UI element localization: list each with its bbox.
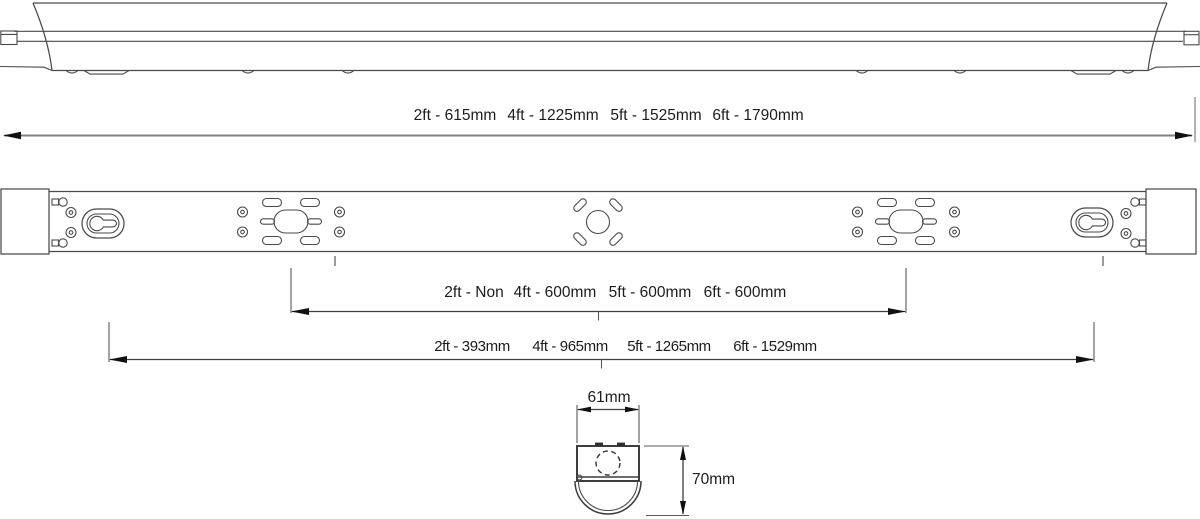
height-dimension: 70mm [644, 446, 735, 516]
overall-length-dimension: 2ft - 615mm 4ft - 1225mm 5ft - 1525mm 6f… [3, 97, 1195, 142]
diffuser-outer-arc [575, 481, 641, 514]
dimension-label: 4ft - 1225mm [507, 107, 598, 124]
angled-slot [572, 197, 587, 212]
dimension-label: 5ft - 1265mm [627, 338, 711, 355]
arrow-left-icon [291, 308, 309, 315]
angled-slot [572, 231, 587, 246]
arrow-down-icon [680, 501, 686, 515]
end-cap-right [1146, 189, 1196, 254]
end-view: 61mm 70mm [575, 389, 735, 516]
top-clip-nub [617, 443, 625, 447]
side-view-right-curve [1148, 3, 1167, 71]
dimension-label: 70mm [692, 471, 735, 488]
knockout-group-left [238, 199, 345, 245]
dimension-label: 6ft - 600mm [704, 284, 787, 301]
dimension-label: 6ft - 1790mm [712, 107, 803, 124]
arrow-left-icon [3, 132, 21, 139]
overall-length-labels: 2ft - 615mm 4ft - 1225mm 5ft - 1525mm 6f… [414, 107, 804, 124]
suspension-clip-icon [1131, 239, 1146, 247]
angled-slot [608, 197, 623, 212]
suspension-clip-icon [52, 239, 67, 247]
knockout-group-right [853, 199, 960, 245]
dimension-label: 5ft - 1525mm [610, 107, 701, 124]
end-view-body [575, 443, 641, 514]
conduit-knockout-circle [596, 451, 620, 475]
dimension-label: 61mm [587, 389, 630, 406]
dimension-label: 2ft - Non [444, 284, 503, 301]
arrow-right-icon [1175, 132, 1193, 139]
dimension-label: 2ft - 393mm [434, 338, 510, 355]
arrow-right-icon [1076, 356, 1094, 363]
suspension-clip-icon [52, 198, 67, 206]
dimension-label: 4ft - 600mm [514, 284, 597, 301]
fixing-centres-dimension: 2ft - 393mm 4ft - 965mm 5ft - 1265mm 6ft… [109, 322, 1094, 369]
centre-knockout [572, 197, 623, 246]
screw-hole-icon [1121, 229, 1131, 239]
dimension-label: 2ft - 615mm [414, 107, 497, 124]
arrow-left-icon [109, 356, 127, 363]
screw-hole-icon [1121, 209, 1131, 219]
dimension-label: 6ft - 1529mm [733, 338, 817, 355]
suspension-clip-icon [1131, 198, 1146, 206]
technical-drawing-page: 2ft - 615mm 4ft - 1225mm 5ft - 1525mm 6f… [0, 0, 1200, 519]
screw-hole-icon [66, 228, 76, 238]
end-cap-left [1, 189, 49, 254]
keyhole-slot-left [82, 209, 124, 238]
screw-hole-icon [66, 208, 76, 218]
side-view [0, 3, 1200, 74]
centre-knockout-hole [587, 211, 610, 234]
arrow-up-icon [680, 446, 686, 460]
dimension-label: 5ft - 600mm [609, 284, 692, 301]
side-view-right-end-tab [1184, 31, 1199, 45]
side-view-left-ledge [0, 67, 52, 71]
keyhole-slot-right [1071, 208, 1113, 237]
arrow-left-icon [577, 407, 591, 413]
fixing-centres-labels: 2ft - 393mm 4ft - 965mm 5ft - 1265mm 6ft… [434, 338, 817, 355]
top-clip-nub [595, 443, 603, 447]
angled-slot [608, 231, 623, 246]
suspension-centres-dimension: 2ft - Non 4ft - 600mm 5ft - 600mm 6ft - … [291, 268, 906, 321]
suspension-centres-labels: 2ft - Non 4ft - 600mm 5ft - 600mm 6ft - … [444, 284, 786, 301]
dimension-label: 4ft - 965mm [532, 338, 608, 355]
luminaire-dimension-drawing: 2ft - 615mm 4ft - 1225mm 5ft - 1525mm 6f… [0, 0, 1200, 519]
side-view-right-ledge [1148, 67, 1200, 71]
arrow-right-icon [625, 407, 639, 413]
width-dimension: 61mm [577, 389, 639, 443]
arrow-right-icon [888, 308, 906, 315]
side-view-left-end-tab [1, 31, 17, 45]
side-view-left-curve [33, 3, 52, 71]
plan-view [1, 189, 1196, 266]
